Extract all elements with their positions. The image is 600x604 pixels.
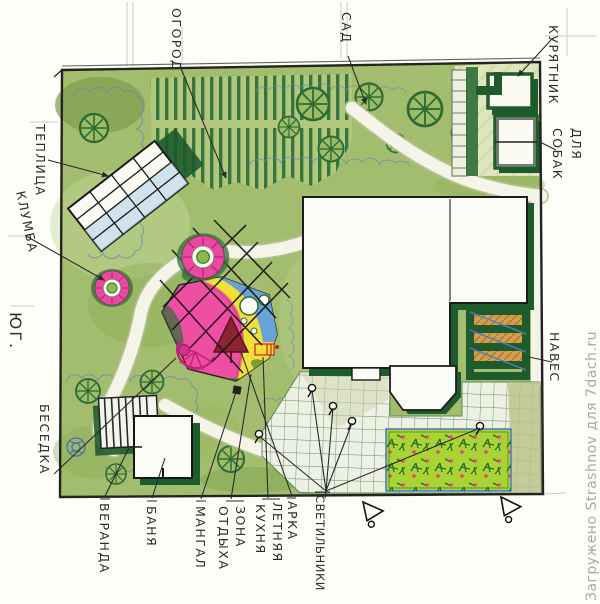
label-svetilniki: СВЕТИЛЬНИКИ — [313, 495, 327, 591]
label-otdykha: ОТДЫХА — [216, 506, 231, 570]
stepping-path — [452, 70, 467, 176]
label-arka: АРКА — [285, 501, 300, 541]
tree-icon — [76, 379, 100, 403]
tree-icon — [279, 117, 300, 138]
tree-icon — [80, 114, 108, 142]
label-kuryatnik: КУРЯТНИК — [546, 25, 561, 105]
label-zona: ЗОНА — [233, 506, 248, 548]
entrance-arrow-icon — [501, 496, 522, 523]
label-letnyaya: ЛЕТНЯЯ — [270, 502, 285, 563]
label-dlya: ДЛЯ — [569, 128, 584, 160]
label-yug: ЮГ. — [6, 312, 25, 350]
dog-pen — [495, 116, 541, 173]
label-besedka: БЕСЕДКА — [37, 404, 52, 475]
courtyard — [452, 62, 542, 176]
label-ogorod: ОГОРОД — [169, 8, 184, 71]
label-sobak: СОБАК — [550, 128, 565, 180]
mangal-symbol — [232, 385, 241, 394]
label-naves: НАВЕС — [547, 332, 562, 383]
flower-bed-icon — [177, 233, 230, 281]
label-teplitsa: ТЕПЛИЦА — [33, 123, 48, 196]
label-veranda: ВЕРАНДА — [97, 503, 112, 574]
label-sad: САД — [339, 12, 354, 44]
garden-table-icon — [240, 297, 258, 315]
tree-icon — [319, 137, 344, 162]
watermark: Загружено Strashnov для 7dach.ru — [584, 331, 600, 601]
canopy — [466, 306, 530, 380]
house-step — [352, 368, 380, 380]
label-banya: БАНЯ — [144, 506, 159, 547]
garden-plan-drawing: ОГОРОД САД КУРЯТНИК ДЛЯ СОБАК ТЕПЛИЦА КЛ… — [0, 0, 600, 604]
flower-bed-icon — [91, 269, 133, 307]
tree-icon — [297, 88, 329, 120]
entrance-arrow-icon — [363, 500, 385, 528]
house-porch — [390, 366, 461, 414]
label-mangal: МАНГАЛ — [193, 506, 208, 569]
entrance-arrows — [363, 496, 522, 528]
patio-flowerbed — [386, 429, 511, 491]
tree-icon — [408, 92, 442, 126]
garden-plan-page: ОГОРОД САД КУРЯТНИК ДЛЯ СОБАК ТЕПЛИЦА КЛ… — [0, 0, 600, 604]
hedge — [466, 67, 478, 176]
tree-icon — [141, 371, 164, 394]
label-kukhnya: КУХНЯ — [253, 504, 268, 555]
label-klumba: КЛУМБА — [13, 190, 41, 255]
banya — [134, 416, 200, 485]
